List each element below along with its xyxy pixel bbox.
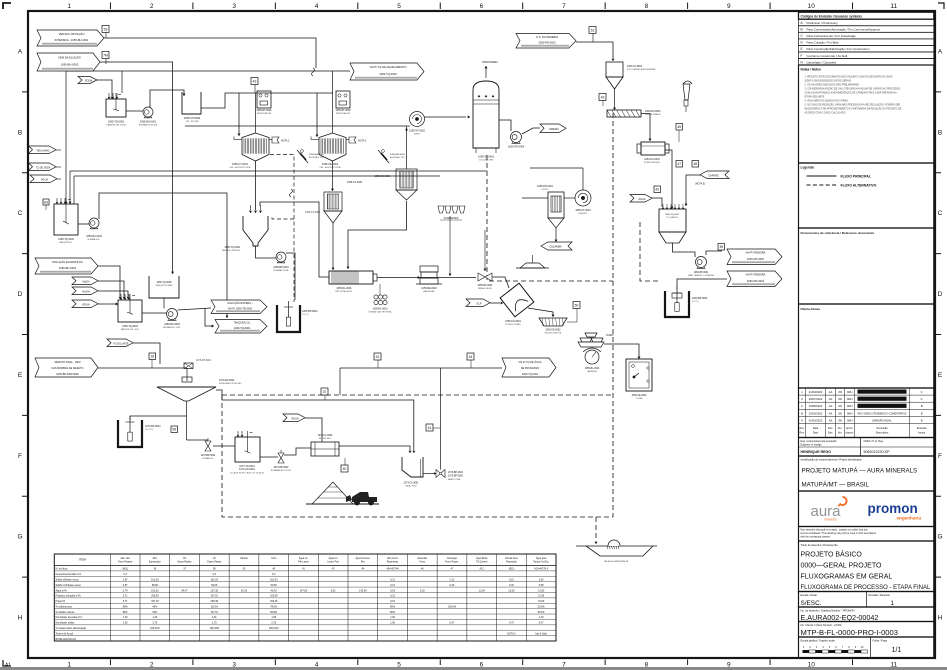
svg-text:D: D [938,291,943,298]
svg-text:1055-CX-0002: 1055-CX-0002 [305,212,321,214]
svg-text:CX TQ: CX TQ [692,301,699,303]
svg-text:Água Bruta: Água Bruta [476,557,488,560]
svg-text:1055-CX-0028: 1055-CX-0028 [347,182,363,184]
svg-text:Approv.: Approv. [845,432,854,435]
svg-text:10: 10 [808,662,816,669]
svg-text:ESPESSADOR DE REJ.: ESPESSADOR DE REJ. [219,382,242,385]
svg-text:136,02%: 136,02% [209,627,219,630]
svg-text:B: B [921,411,923,415]
svg-text:DE PROCESSO: DE PROCESSO [521,367,539,370]
svg-text:C: C [921,397,923,401]
svg-text:NaCN: NaCN [82,279,89,283]
svg-text:Legenda: Legenda [801,166,814,170]
svg-text:1073-MT-0001: 1073-MT-0001 [196,360,212,362]
svg-text:C: C [18,210,23,217]
svg-text:VAI P/ PENEIRA: VAI P/ PENEIRA [746,251,766,255]
svg-text:337,29: 337,29 [151,600,159,603]
svg-text:JWH: JWH [847,411,853,415]
svg-text:Teores de Au-g/t: Teores de Au-g/t [56,632,74,635]
svg-text:H: H [938,615,943,622]
svg-text:21/03/2022: 21/03/2022 [809,390,823,394]
svg-text:NaOH: NaOH [82,289,89,293]
svg-text:3,71: 3,71 [123,595,128,598]
svg-text:84,47: 84,47 [182,589,189,592]
svg-text:JWH: JWH [847,418,853,422]
svg-text:1073-BP-0003: 1073-BP-0003 [448,472,464,474]
svg-text:No. do desenho / Drawing Nu: No. do desenho / Drawing Number - PROMON [801,608,855,612]
svg-text:C: C [801,404,803,408]
svg-text:FLUXO ALTERNATIVO: FLUXO ALTERNATIVO [841,184,877,188]
svg-text:2,87: 2,87 [123,578,128,581]
svg-text:1055-TQ-0005: 1055-TQ-0005 [58,238,74,241]
svg-text:NOTA 2: NOTA 2 [358,140,367,143]
svg-text:Alim.Forno: Alim.Forno [387,557,399,560]
svg-text:FLUXOGRAMA DE PROCESSO - ETA: FLUXOGRAMA DE PROCESSO - ETAPA FINAL [801,585,931,591]
svg-text:JW: JW [838,411,842,415]
svg-text:Lavad. Piso: Lavad. Piso [327,562,340,564]
svg-text:NECESSÁRIO O RE-APROVEITAMENTO: NECESSÁRIO O RE-APROVEITAMENTO E A RETOM… [805,108,902,111]
svg-text:Cancelado / Canceled: Cancelado / Canceled [807,60,837,64]
svg-text:142,69: 142,69 [359,589,367,592]
svg-text:47: 47 [677,162,681,166]
svg-text:VEM LAVAG.: VEM LAVAG. [36,149,50,152]
svg-text:Descrição: Descrição [876,427,888,430]
svg-text:Água para: Água para [536,557,547,560]
svg-text:3: 3 [232,662,236,669]
svg-text:Para Comentários/Aprovação /: Para Comentários/Aprovação / For Comment… [807,28,881,32]
svg-text:BOMBA POLPA: BOMBA POLPA [274,269,289,272]
svg-text:1065-BP-0001/0002: 1065-BP-0001/0002 [56,373,79,376]
svg-text:VAI P/ PENEIRA: VAI P/ PENEIRA [746,273,766,277]
svg-text:promon: promon [868,501,918,516]
svg-text:BATELADA/CICLO: BATELADA/CICLO [56,638,77,641]
svg-text:Forno: Forno [419,561,426,564]
svg-text:9: 9 [727,3,731,10]
svg-text:3. CONSIDERADA ADIÇÃO DE UM: 3. CONSIDERADA ADIÇÃO DE UM LOTE/CARGA A… [805,88,901,91]
svg-text:5062012220-SP: 5062012220-SP [864,450,891,454]
svg-text:0,32: 0,32 [509,584,514,587]
svg-text:1050-BU-0002: 1050-BU-0002 [61,63,79,67]
svg-text:12,00: 12,00 [479,589,486,592]
svg-text:7: 7 [562,662,566,669]
svg-text:1073-BP-0004: 1073-BP-0004 [145,425,161,428]
svg-text:with the contractual clauses: with the contractual clauses [801,536,831,539]
svg-text:1060-FO-0001: 1060-FO-0001 [644,158,660,161]
svg-text:0,47: 0,47 [509,622,514,625]
svg-text:MESA E NIVEL: MESA E NIVEL [478,287,493,290]
svg-text:48: 48 [693,162,697,166]
svg-text:1060-TQ-0001: 1060-TQ-0001 [665,214,680,216]
svg-text:5: 5 [397,662,401,669]
svg-text:5: 5 [397,3,401,10]
svg-text:B: B [801,28,803,32]
svg-text:1073-FL-0001: 1073-FL-0001 [317,434,333,437]
svg-text:45=NOTA4: 45=NOTA4 [387,568,400,571]
svg-text:5. NO CASO DE REJEIÇÃO, PARA: 5. NO CASO DE REJEIÇÃO, PARA NÃO PREJUDI… [805,104,901,107]
svg-text:1050-PD-0004: 1050-PD-0004 [508,146,525,149]
svg-text:1040-TQ-0001: 1040-TQ-0001 [234,326,251,330]
svg-text:bat-3 1/dia: bat-3 1/dia [535,632,547,635]
svg-text:VAI P/ TQ DE AQUECIMENTO: VAI P/ TQ DE AQUECIMENTO [370,65,407,69]
svg-text:TANQUE SOL.: TANQUE SOL. [59,241,73,244]
svg-text:F: F [938,453,942,460]
svg-text:161,03: 161,03 [211,578,219,581]
svg-text:63,0%: 63,0% [211,605,219,608]
svg-text:1055-FL-0001/0002/0003 E NOTAS: 1055-FL-0001/0002/0003 E NOTAS GERAIS. [805,80,852,83]
svg-text:1060-EH-0001: 1060-EH-0001 [645,110,661,113]
svg-text:BOMBA DE SODA: BOMBA DE SODA [139,124,158,127]
svg-text:6: 6 [480,3,484,10]
svg-text:1050-TQ-0002: 1050-TQ-0002 [379,72,397,76]
svg-text:ÁGUA: ÁGUA [41,178,48,181]
svg-text:CX TQ: CX TQ [302,314,309,316]
svg-text:0,12: 0,12 [390,578,395,581]
svg-text:5,02: 5,02 [331,589,336,592]
svg-text:Densidade da polpa-t/m³: Densidade da polpa-t/m³ [56,616,83,619]
svg-text:No. Cliente / Client Number: No. Cliente / Client Number - AURA [801,623,842,627]
svg-text:1055-VT-0002: 1055-VT-0002 [409,130,425,133]
svg-text:Forno Regen.: Forno Regen. [445,561,459,564]
svg-text:MOLDE LINGOTE: MOLDE LINGOTE [545,333,562,335]
svg-text:1,00: 1,00 [390,622,395,625]
svg-text:0,47: 0,47 [539,622,544,625]
svg-text:1055-CH-0002: 1055-CH-0002 [184,117,201,120]
svg-text:ITEM: ITEM [79,558,87,562]
svg-text:A13=NOTA 3: A13=NOTA 3 [534,568,549,571]
svg-text:B: B [938,129,942,136]
svg-text:PROJETO MATUPÁ — AURA MINERA: PROJETO MATUPÁ — AURA MINERALS [802,468,918,475]
svg-text:100,02%: 100,02% [269,627,279,630]
svg-text:E: E [801,47,803,51]
svg-text:1073-CX-0001: 1073-CX-0001 [404,483,420,485]
svg-text:TANQUES CIL: TANQUES CIL [233,321,251,325]
svg-text:1,19: 1,19 [539,616,544,619]
svg-text:1055-TQ-0002: 1055-TQ-0002 [224,246,240,249]
svg-text:JW: JW [838,418,842,422]
svg-text:53: 53 [104,28,108,32]
svg-text:GLP: GLP [476,302,481,305]
svg-text:2020-TQ-0001: 2020-TQ-0001 [522,373,539,376]
svg-text:268,38: 268,38 [211,600,219,603]
svg-text:REV. GERAL/ ATENDENDO A COMENT: REV. GERAL/ ATENDENDO A COMENTÁRIOS [858,412,907,415]
svg-text:46%: 46% [152,605,158,608]
svg-text:3,71: 3,71 [123,600,128,603]
svg-text:20,0%: 20,0% [538,605,546,608]
svg-text:1060-PN-0001: 1060-PN-0001 [747,279,765,283]
svg-text:Tanque Sol.Est.: Tanque Sol.Est. [533,561,549,564]
svg-text:CAÇAMBA: CAÇAMBA [549,246,562,249]
svg-text:O.S. DA PENEIRA: O.S. DA PENEIRA [536,35,558,39]
svg-text:43: 43 [253,80,257,84]
svg-text:1,43: 1,43 [152,616,157,619]
svg-text:Ver.: Ver. [838,427,843,430]
svg-text:TANQUE PULMÃO: TANQUE PULMÃO [155,284,173,287]
svg-text:1055-HW-0001: 1055-HW-0001 [309,154,325,156]
svg-text:NOTA 2: NOTA 2 [281,140,290,143]
svg-text:E: E [18,372,23,379]
svg-text:FILTRO REJ.: FILTRO REJ. [319,438,332,440]
svg-text:Regenerag.: Regenerag. [387,561,399,564]
svg-text:COM A QUANTIDADE E A MOVIMENTA: COM A QUANTIDADE E A MOVIMENTAÇÃO DE CAR… [805,92,898,95]
svg-text:E.AURA002-EQ2-00042: E.AURA002-EQ2-00042 [801,613,879,622]
svg-text:45: 45 [677,125,681,129]
svg-text:1055-BL-0001: 1055-BL-0001 [585,368,600,370]
svg-text:TQ DE SODA: TQ DE SODA [36,166,51,169]
svg-text:SILO CARVÃO A REGENERAR: SILO CARVÃO A REGENERAR [627,68,656,71]
svg-text:B: B [921,418,923,422]
svg-text:61,93: 61,93 [241,589,248,592]
svg-text:0,33: 0,33 [420,589,425,592]
svg-text:RETIFICADOR: RETIFICADOR [336,112,351,115]
svg-text:0,15: 0,15 [509,578,514,581]
svg-text:44: 44 [469,355,473,359]
svg-text:A: A [18,48,23,55]
svg-text:1060-BP-0002: 1060-BP-0002 [692,297,708,300]
svg-text:1073-BP-0002: 1073-BP-0002 [274,467,290,469]
svg-text:1060-BP-0001: 1060-BP-0001 [694,272,710,274]
svg-text:0,15: 0,15 [390,600,395,603]
svg-text:C: C [938,210,943,217]
svg-text:100,02%: 100,02% [150,627,160,630]
svg-text:35(1): 35(1) [509,568,515,571]
svg-text:Rev.: Rev. [800,432,805,435]
svg-text:51: 51 [591,29,595,33]
svg-text:TQ QUENCH: TQ QUENCH [666,217,679,219]
svg-text:FLOCULANTE: FLOCULANTE [113,342,129,345]
svg-text:PROJETO BÁSICO: PROJETO BÁSICO [801,550,863,559]
svg-text:12,80: 12,80 [538,589,545,592]
svg-text:1. PROJETO ESTE DOCUMENTO EM: 1. PROJETO ESTE DOCUMENTO EM CONJUNTO CO… [805,77,893,79]
svg-text:80%: 80% [123,605,129,608]
svg-text:JWH: JWH [847,397,853,401]
svg-text:15,00: 15,00 [538,600,545,603]
svg-text:B: B [921,404,923,408]
svg-text:ÁGUA: ÁGUA [291,417,298,420]
svg-text:Água rec: Água rec [329,557,339,560]
svg-text:JWH: JWH [847,404,853,408]
svg-text:Des.: Des. [828,432,833,435]
svg-text:255,90: 255,90 [151,595,159,598]
svg-text:OURO: OURO [606,334,614,337]
svg-text:191,62: 191,62 [151,589,159,592]
svg-text:AGULHA E TIPO: AGULHA E TIPO [309,156,325,159]
svg-text:E: E [938,372,943,379]
svg-text:0,74: 0,74 [123,589,128,592]
svg-text:1,00: 1,00 [390,616,395,619]
svg-text:MATUPÁ/MT — BRASIL: MATUPÁ/MT — BRASIL [802,482,870,489]
svg-text:78,0%: 78,0% [270,605,278,608]
svg-text:100,0%: 100,0% [448,605,457,608]
svg-text:39: 39 [719,245,723,249]
svg-text:AA: AA [829,390,833,394]
svg-text:1050-BU-0001: 1050-BU-0001 [59,266,77,270]
svg-text:Conforme Construído / As bui: Conforme Construído / As built [807,54,848,58]
svg-text:CEL. ELETROLÍTICA: CEL. ELETROLÍTICA [319,166,341,169]
svg-text:BOMBA / VAC RETORTA: BOMBA / VAC RETORTA [369,311,392,314]
svg-text:Título do desenho / Dr: Título do desenho / Drawing title [801,543,839,547]
svg-text:0000—GERAL PROJETO: 0000—GERAL PROJETO [801,563,882,570]
svg-text:Polpa t/h: Polpa t/h [56,600,66,603]
svg-text:INTENSIVA - 1055-BU-3001: INTENSIVA - 1055-BU-3001 [55,38,89,42]
svg-text:% massa sobre alimentação: % massa sobre alimentação [56,627,87,630]
svg-text:1: 1 [891,600,895,607]
svg-text:RETORTA ELETR.: RETORTA ELETR. [335,290,353,293]
svg-text:12,00: 12,00 [508,589,515,592]
svg-text:AA: AA [829,397,833,401]
svg-text:FUNDENTES: FUNDENTES [444,217,459,220]
svg-text:1055-BP-0004: 1055-BP-0004 [302,310,318,313]
svg-text:1055-BU-0002: 1055-BU-0002 [164,323,180,326]
svg-text:80%: 80% [123,611,129,614]
svg-text:JW: JW [838,390,842,394]
svg-text:1055-CE-0004: 1055-CE-0004 [632,395,648,397]
svg-text:8: 8 [645,662,649,669]
svg-text:4. ÁGUA BRUTA E QUENCH DO FO: 4. ÁGUA BRUTA E QUENCH DO FORNO. [805,100,849,103]
svg-text:0,03: 0,03 [390,589,395,592]
svg-text:1073-BP-0001: 1073-BP-0001 [201,455,217,457]
svg-text:1045-PN-0007: 1045-PN-0007 [747,257,765,261]
svg-text:DRENO: DRENO [549,127,558,131]
svg-text:JW: JW [838,397,842,401]
svg-text:JW: JW [838,404,842,408]
svg-text:Notas / Notes: Notas / Notes [801,68,822,72]
svg-text:1055-SX-0001: 1055-SX-0001 [478,156,495,159]
svg-text:1055-MT-0001: 1055-MT-0001 [478,285,494,287]
svg-text:SODA: SODA [85,78,93,82]
svg-text:TQ Quench: TQ Quench [476,562,488,564]
svg-text:1055-TQ-0008: 1055-TQ-0008 [157,282,173,284]
svg-text:COLUNA CRE: COLUNA CRE [479,159,494,162]
svg-text:1073-BP-0005: 1073-BP-0005 [448,476,464,478]
svg-text:ÁGUA: ÁGUA [638,198,645,201]
svg-text:EXAUST.: EXAUST. [579,212,588,215]
svg-text:105,08: 105,08 [270,595,278,598]
svg-text:C: C [921,390,923,394]
svg-text:Planta-Chave: Planta-Chave [801,307,821,311]
svg-text:Espes.Rejeito: Espes.Rejeito [207,561,222,564]
svg-text:4: 4 [315,662,319,669]
svg-text:H: H [18,615,23,622]
svg-text:3: 3 [232,3,236,10]
svg-text:Espessador: Espessador [149,561,161,564]
svg-text:1,61: 1,61 [212,616,217,619]
svg-text:42: 42 [655,188,659,192]
svg-text:Reposição: Reposição [506,561,517,564]
svg-text:0,15: 0,15 [390,595,395,598]
svg-text:A: A [938,48,943,55]
svg-text:1055-BP-0001: 1055-BP-0001 [273,266,289,269]
svg-text:1055-FO-0001: 1055-FO-0001 [505,320,521,323]
svg-text:BANDEJAS: BANDEJAS [424,290,436,293]
svg-text:Engineer in charge: Engineer in charge [801,443,823,446]
svg-text:FORNO FUSÃO: FORNO FUSÃO [505,323,521,326]
svg-text:CEL. ELETROLÍTICA: CEL. ELETROLÍTICA [229,166,251,169]
svg-text:1,00: 1,00 [123,622,128,625]
svg-text:B: B [18,129,22,136]
svg-text:TQ. ALIM. FILTRO / AGIT. DO TQ: TQ. ALIM. FILTRO / AGIT. DO TQ. ALIM. [230,472,265,475]
svg-text:F: F [801,54,803,58]
svg-text:Rev.: Rev. [800,427,805,430]
svg-text:TANQUE SOL. EST.: TANQUE SOL. EST. [121,328,140,331]
svg-text:A1: A1 [5,663,11,669]
svg-text:Filtrado: Filtrado [240,557,248,560]
svg-text:BOMBA SOL. EST.: BOMBA SOL. EST. [163,326,181,329]
svg-text:VAI P/ TQ DE ÁGUA: VAI P/ TQ DE ÁGUA [519,361,542,364]
svg-text:167,01: 167,01 [211,595,219,598]
svg-text:CX 6 TQ: CX 6 TQ [145,429,153,431]
svg-text:ÁGUA: ÁGUA [82,302,90,306]
svg-text:COFRE: COFRE [636,398,644,400]
svg-text:10: 10 [808,3,816,10]
svg-text:2,70: 2,70 [152,622,157,625]
svg-text:161,03: 161,03 [270,578,278,581]
svg-text:Água rec: Água rec [299,557,309,560]
svg-text:Issued: Issued [918,432,926,435]
svg-text:engenharia: engenharia [897,516,922,521]
svg-text:TANQUE DE SODA: TANQUE DE SODA [106,124,126,127]
svg-text:Para Cotação / For Bids: Para Cotação / For Bids [807,41,840,45]
svg-text:TANQUE QUENCH: TANQUE QUENCH [222,249,241,252]
svg-text:Folha / Page: Folha / Page [873,638,888,642]
svg-text:7: 7 [562,3,566,10]
svg-text:80%: 80% [390,605,396,608]
svg-text:Códigos de Emissão / Issuanc: Códigos de Emissão / Issuance symbols [801,14,863,18]
svg-text:12,56: 12,56 [538,595,545,598]
svg-text:8: 8 [645,3,649,10]
svg-text:2: 2 [150,3,154,10]
svg-text:1055-RT-0002: 1055-RT-0002 [335,109,351,112]
svg-text:Nº do fluxo: Nº do fluxo [56,567,69,571]
svg-text:AA: AA [829,411,833,415]
svg-text:23/03/2022: 23/03/2022 [809,411,823,415]
svg-text:(NOTA 5): (NOTA 5) [695,183,705,186]
svg-text:% sólidos volume: % sólidos volume [56,611,76,614]
svg-text:1055-RT-0001: 1055-RT-0001 [256,109,272,112]
svg-text:FLUXO PRINCIPAL: FLUXO PRINCIPAL [841,175,871,179]
svg-text:1/1: 1/1 [892,647,902,654]
svg-text:Espes.Rejeito: Espes.Rejeito [178,561,193,564]
svg-text:2,70: 2,70 [212,622,217,625]
svg-text:Aprov.: Aprov. [846,427,853,430]
svg-text:Revisão / Revision: Revisão / Revision [869,593,891,597]
svg-text:0,12: 0,12 [450,578,455,581]
svg-text:2,00: 2,00 [539,578,544,581]
svg-text:45,42: 45,42 [271,589,278,592]
svg-text:REJEITO FINAL - VEM: REJEITO FINAL - VEM [55,361,81,364]
svg-text:Sólido t/h(base seca): Sólido t/h(base seca) [56,578,79,581]
svg-text:Escala / Scale: Escala / Scale [801,593,818,597]
svg-text:0,47: 0,47 [450,622,455,625]
svg-text:AGULHA E TIPO: AGULHA E TIPO [390,156,406,159]
svg-text:16: 16 [150,355,154,359]
svg-text:NOTA 3: NOTA 3 [507,632,516,635]
svg-text:1073-EP-0001: 1073-EP-0001 [219,379,235,382]
svg-text:G: G [17,534,22,541]
svg-text:B: B [801,411,803,415]
svg-text:BOMBA U.F.: BOMBA U.F. [202,457,214,460]
svg-text:D: D [18,291,23,298]
svg-text:BALANÇA: BALANÇA [587,370,597,373]
svg-text:147,56: 147,56 [300,589,308,592]
svg-text:Água m³/h: Água m³/h [56,589,68,592]
svg-text:Alim: Alim [153,557,158,560]
svg-text:AA: AA [829,418,833,422]
svg-text:40: 40 [343,467,347,471]
svg-text:1055-BU-0001: 1055-BU-0001 [140,121,157,124]
svg-text:Ver.: Ver. [838,432,843,435]
svg-text:Água Process.: Água Process. [356,557,371,560]
svg-text:ETAPA SEGUINTE.: ETAPA SEGUINTE. [805,96,826,99]
